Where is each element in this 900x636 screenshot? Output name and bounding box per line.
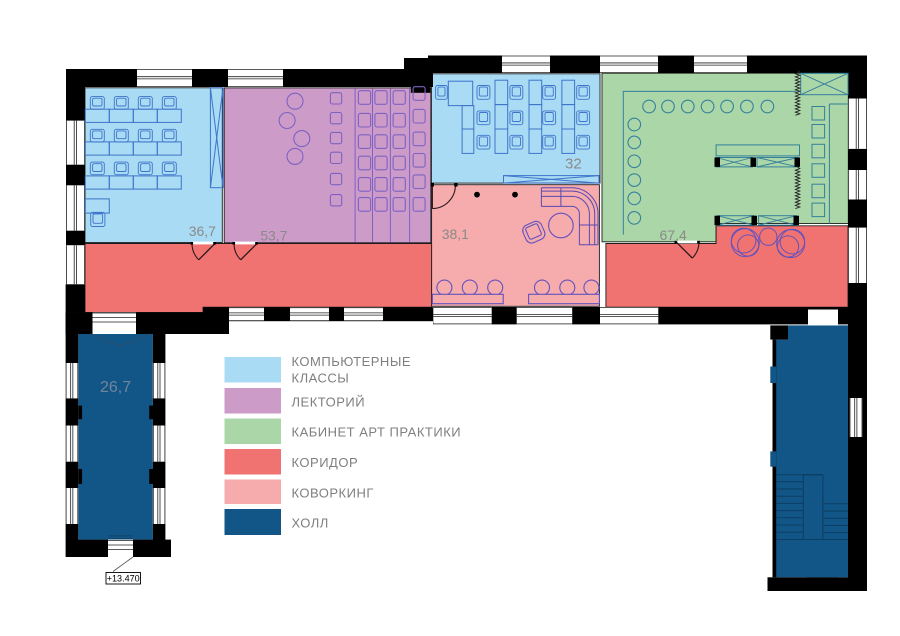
svg-text:КАБИНЕТ АРТ ПРАКТИКИ: КАБИНЕТ АРТ ПРАКТИКИ xyxy=(292,425,462,440)
svg-text:ХОЛЛ: ХОЛЛ xyxy=(292,516,329,531)
svg-text:КОВОРКИНГ: КОВОРКИНГ xyxy=(292,486,374,501)
svg-text:67,4: 67,4 xyxy=(660,227,687,243)
svg-text:32: 32 xyxy=(565,156,582,173)
svg-text:КОМПЬЮТЕРНЫЕ: КОМПЬЮТЕРНЫЕ xyxy=(292,354,412,369)
svg-text:ЛЕКТОРИЙ: ЛЕКТОРИЙ xyxy=(292,395,366,410)
svg-text:38,1: 38,1 xyxy=(442,226,469,242)
svg-text:+13.470: +13.470 xyxy=(107,573,140,583)
svg-text:36,7: 36,7 xyxy=(189,223,216,239)
svg-text:53,7: 53,7 xyxy=(260,228,287,244)
svg-text:КЛАССЫ: КЛАССЫ xyxy=(292,371,350,386)
svg-text:КОРИДОР: КОРИДОР xyxy=(292,455,359,470)
svg-text:26,7: 26,7 xyxy=(100,379,131,396)
